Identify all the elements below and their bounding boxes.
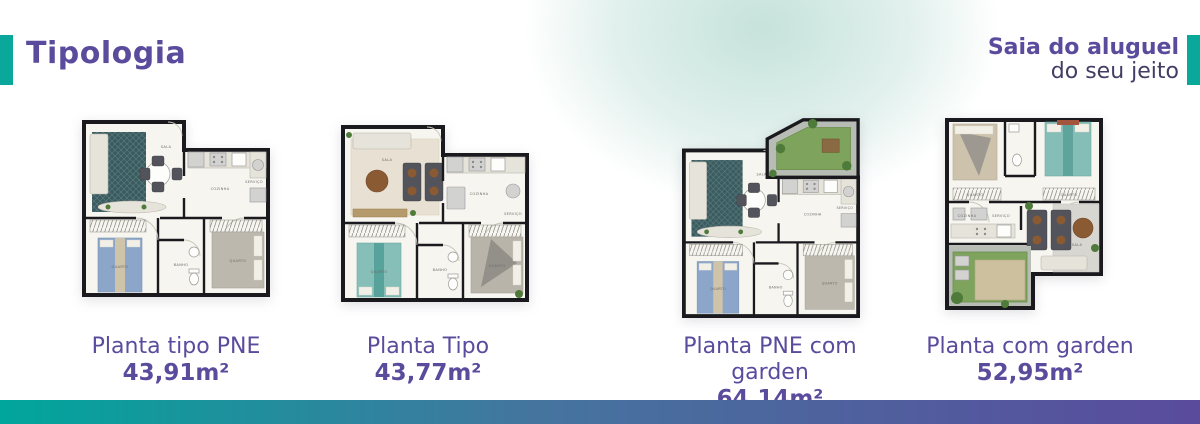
- room-label: COZINHA: [958, 214, 977, 218]
- floor-plan-planta-tipo: SALA COZINHA SERVIÇO QUARTO BANHO QUARTO: [340, 125, 530, 302]
- title-accent-bar: [0, 35, 13, 85]
- room-label: SERVIÇO: [992, 214, 1010, 218]
- plan-caption-4: Planta com garden 52,95m²: [905, 334, 1155, 386]
- floor-plan-planta-pne-com-garden: SALA COZINHA SERVIÇO QUARTO BANHO QUARTO: [682, 116, 860, 318]
- room-label: SERVIÇO: [836, 206, 853, 210]
- room-label: QUARTO: [967, 193, 984, 197]
- room-label: COZINHA: [211, 187, 230, 191]
- room-label: QUARTO: [112, 265, 129, 269]
- plan-area: 52,95m²: [905, 360, 1155, 386]
- room-label: QUARTO: [1061, 193, 1078, 197]
- room-label: SALA: [161, 145, 172, 149]
- tagline: Saia do aluguel do seu jeito: [988, 36, 1179, 84]
- tagline-accent-bar: [1187, 35, 1200, 85]
- plan-caption-1: Planta tipo PNE 43,91m²: [56, 334, 296, 386]
- plan-area: 43,77m²: [308, 360, 548, 386]
- room-label: SERVIÇO: [504, 212, 522, 216]
- slide: Tipologia Saia do aluguel do seu jeito: [0, 0, 1200, 424]
- room-label: QUARTO: [371, 270, 388, 274]
- plan-name: Planta Tipo: [308, 334, 548, 360]
- room-label: SALA: [757, 172, 767, 176]
- room-label: QUARTO: [489, 264, 506, 268]
- page-title: Tipologia: [26, 36, 186, 71]
- plan-name: Planta tipo PNE: [56, 334, 296, 360]
- plan-name: Planta com garden: [905, 334, 1155, 360]
- room-label: COZINHA: [804, 213, 822, 217]
- room-label: QUARTO: [230, 259, 247, 263]
- room-label: SERVIÇO: [245, 180, 263, 184]
- room-label: BANHO: [433, 268, 448, 272]
- room-label: BANHO: [174, 263, 189, 267]
- room-label: SALA: [1072, 243, 1083, 247]
- room-label: COZINHA: [470, 192, 489, 196]
- room-label: QUARTO: [822, 281, 838, 285]
- floor-plan-planta-tipo-pne: SALA COZINHA SERVIÇO QUARTO BANHO QUARTO: [82, 120, 270, 297]
- room-label: BANHO: [769, 285, 783, 289]
- plan-caption-2: Planta Tipo 43,77m²: [308, 334, 548, 386]
- plan-area: 43,91m²: [56, 360, 296, 386]
- room-label: QUARTO: [710, 287, 726, 291]
- footer-gradient-bar: [0, 400, 1200, 424]
- floor-plan-planta-com-garden: QUARTO QUARTO COZINHA SERVIÇO SALA: [945, 118, 1103, 310]
- room-label: SALA: [382, 158, 393, 162]
- plan-name: Planta PNE com garden: [645, 334, 895, 386]
- tagline-line1: Saia do aluguel: [988, 36, 1179, 60]
- tagline-line2: do seu jeito: [988, 60, 1179, 84]
